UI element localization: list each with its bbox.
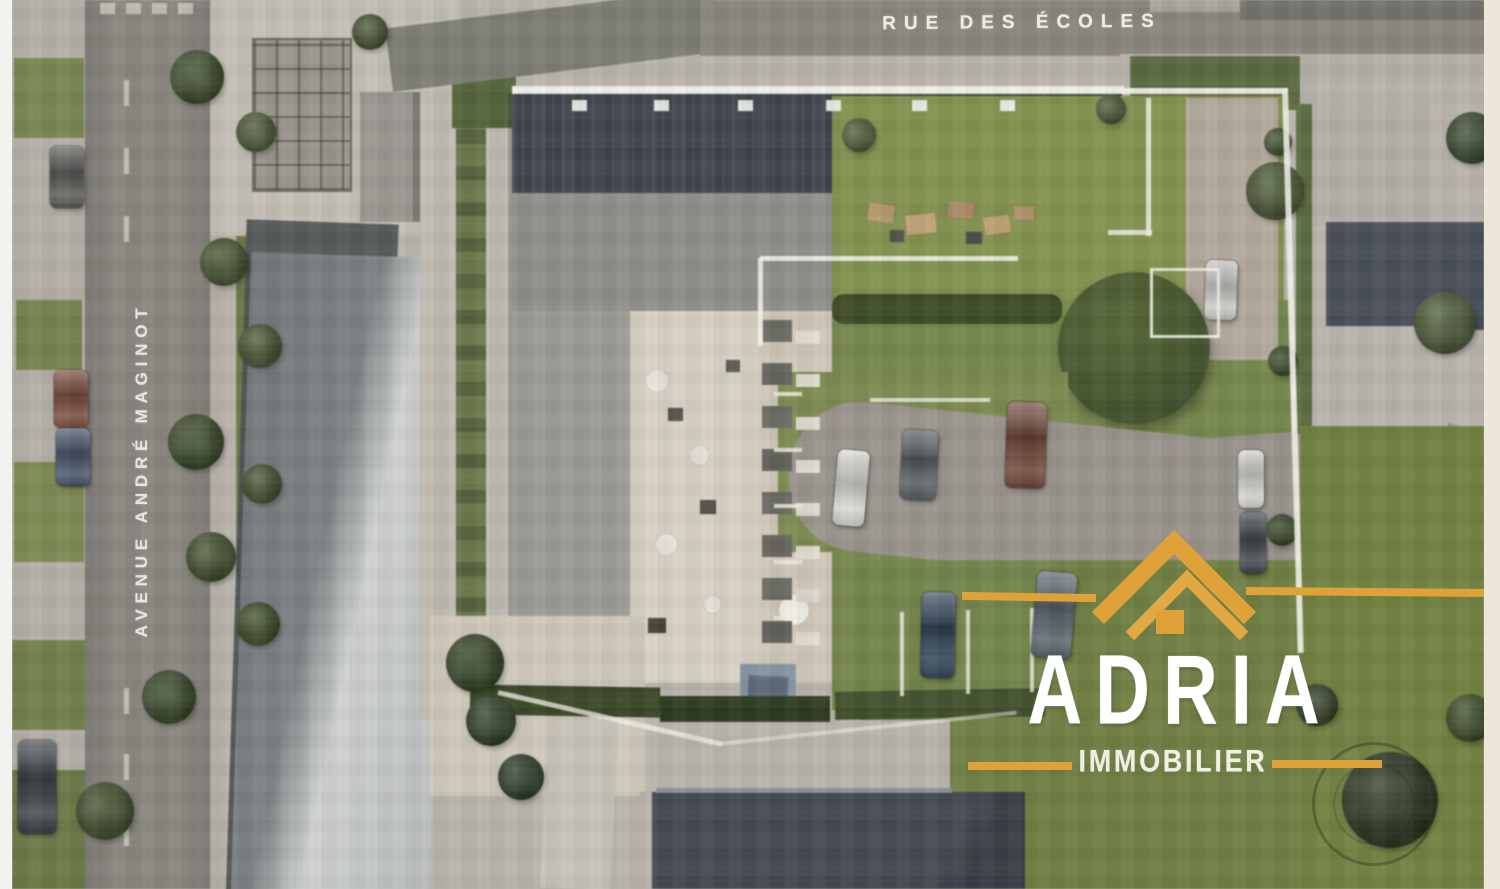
terrace-furniture (947, 201, 974, 219)
terrace-furniture (646, 370, 668, 392)
tree (1246, 162, 1304, 220)
balcony-unit (796, 546, 820, 559)
car (56, 428, 90, 486)
bottom-building-hip (915, 792, 1025, 889)
inner-line-vertical (758, 258, 763, 346)
terrace-furniture (867, 202, 895, 223)
east-roof-light-1 (1312, 104, 1432, 226)
car (1238, 450, 1264, 508)
balcony-unit (796, 331, 820, 344)
car (18, 740, 56, 834)
terrace-furniture (726, 360, 740, 372)
balcony-unit (762, 492, 792, 514)
car (832, 449, 871, 527)
roof-left-wing (512, 311, 630, 661)
balcony-unit (762, 406, 792, 428)
right-margin (1484, 0, 1500, 889)
logo-brand-text: ADRIA (1000, 634, 1360, 747)
terrace-furniture (704, 596, 721, 613)
tree (242, 464, 282, 504)
road-marking (152, 3, 167, 14)
aerial-site-render: RUE DES ÉCOLES AVENUE ANDRÉ MAGINOT ADRI… (0, 0, 1500, 889)
garden-line-vertical (1146, 98, 1151, 236)
roof-skylight (826, 100, 841, 111)
street-label-avenue-andre-maginot: AVENUE ANDRÉ MAGINOT (132, 250, 162, 690)
roof-skylight (912, 100, 927, 111)
terrace-furniture (966, 232, 982, 244)
hedge-band-2 (660, 696, 830, 722)
balcony-unit (796, 417, 820, 430)
logo-tagline-text: IMMOBILIER (1063, 744, 1283, 780)
bottom-building-ridge (656, 788, 952, 793)
tagline-line-left (968, 762, 1072, 770)
east-hedge-strip (1296, 104, 1312, 434)
balcony-unit (762, 535, 792, 557)
road-marking (178, 3, 193, 14)
road-marking (124, 754, 129, 780)
balcony-unit (796, 374, 820, 387)
bottom-path (540, 698, 620, 889)
road-marking (126, 3, 141, 14)
car (50, 146, 84, 208)
garden-line-horizontal (1108, 230, 1152, 235)
roof-icon (1092, 520, 1256, 644)
tree (170, 50, 224, 104)
tree (352, 14, 388, 50)
car (920, 592, 955, 679)
car (899, 429, 939, 501)
parking-stall-line (774, 504, 802, 508)
inner-line-horizontal (760, 256, 1018, 261)
rue-dark-band (1240, 0, 1484, 20)
boundary-north (512, 88, 1288, 94)
tree (498, 754, 544, 800)
balcony-unit (796, 460, 820, 473)
car (1005, 401, 1048, 488)
tagline-line-right (1272, 760, 1382, 768)
car (54, 370, 88, 428)
west-green-2 (16, 300, 82, 370)
parking-stall-line (774, 560, 802, 564)
terrace-furniture (690, 446, 709, 465)
road-marking (100, 3, 115, 14)
terrace-furniture (668, 408, 683, 421)
garden-hedge-row (832, 294, 1062, 324)
roof-skylight (738, 100, 753, 111)
terrace-furniture (983, 214, 1011, 235)
terrace-furniture (1014, 206, 1034, 220)
parking-stall-line (774, 616, 802, 620)
road-marking (124, 216, 129, 242)
garden-terrace-outline (1150, 268, 1220, 338)
terrace-furniture (648, 618, 666, 633)
tree (236, 602, 280, 646)
tree (236, 112, 276, 152)
terrace-furniture (656, 534, 677, 555)
balcony-unit (762, 363, 792, 385)
tree (1414, 292, 1476, 354)
road-marking (124, 80, 129, 106)
terrace-furniture (700, 500, 716, 514)
balcony-unit (762, 320, 792, 342)
roof-skylight (654, 100, 669, 111)
balcony-unit (796, 589, 820, 602)
roof-skylight (1000, 100, 1015, 111)
tree (238, 324, 282, 368)
roof-skylight (572, 100, 587, 111)
balcony-unit (762, 578, 792, 600)
parking-stall-line (966, 610, 970, 694)
balcony-unit (796, 632, 820, 645)
tree (446, 634, 504, 692)
tree (1096, 94, 1126, 124)
parking-stall-line (870, 398, 990, 402)
road-marking (124, 688, 129, 714)
parking-stall-line (774, 448, 802, 452)
tree (76, 782, 134, 840)
balcony-unit (762, 449, 792, 471)
west-green-4 (12, 640, 86, 730)
west-green-1 (14, 58, 84, 138)
street-label-rue-des-ecoles: RUE DES ÉCOLES (862, 11, 1182, 36)
terrace-furniture (905, 212, 937, 235)
bottom-building-roof (652, 792, 952, 889)
parking-stall-line (900, 612, 904, 696)
left-margin (0, 0, 12, 889)
terrace-furniture (890, 230, 904, 242)
tree (168, 414, 224, 470)
parking-stall-line (774, 392, 802, 396)
tree (842, 118, 876, 152)
tree (200, 238, 248, 286)
road-marking (124, 148, 129, 174)
tree (186, 532, 236, 582)
tree (466, 696, 516, 746)
balcony-unit (762, 621, 792, 643)
